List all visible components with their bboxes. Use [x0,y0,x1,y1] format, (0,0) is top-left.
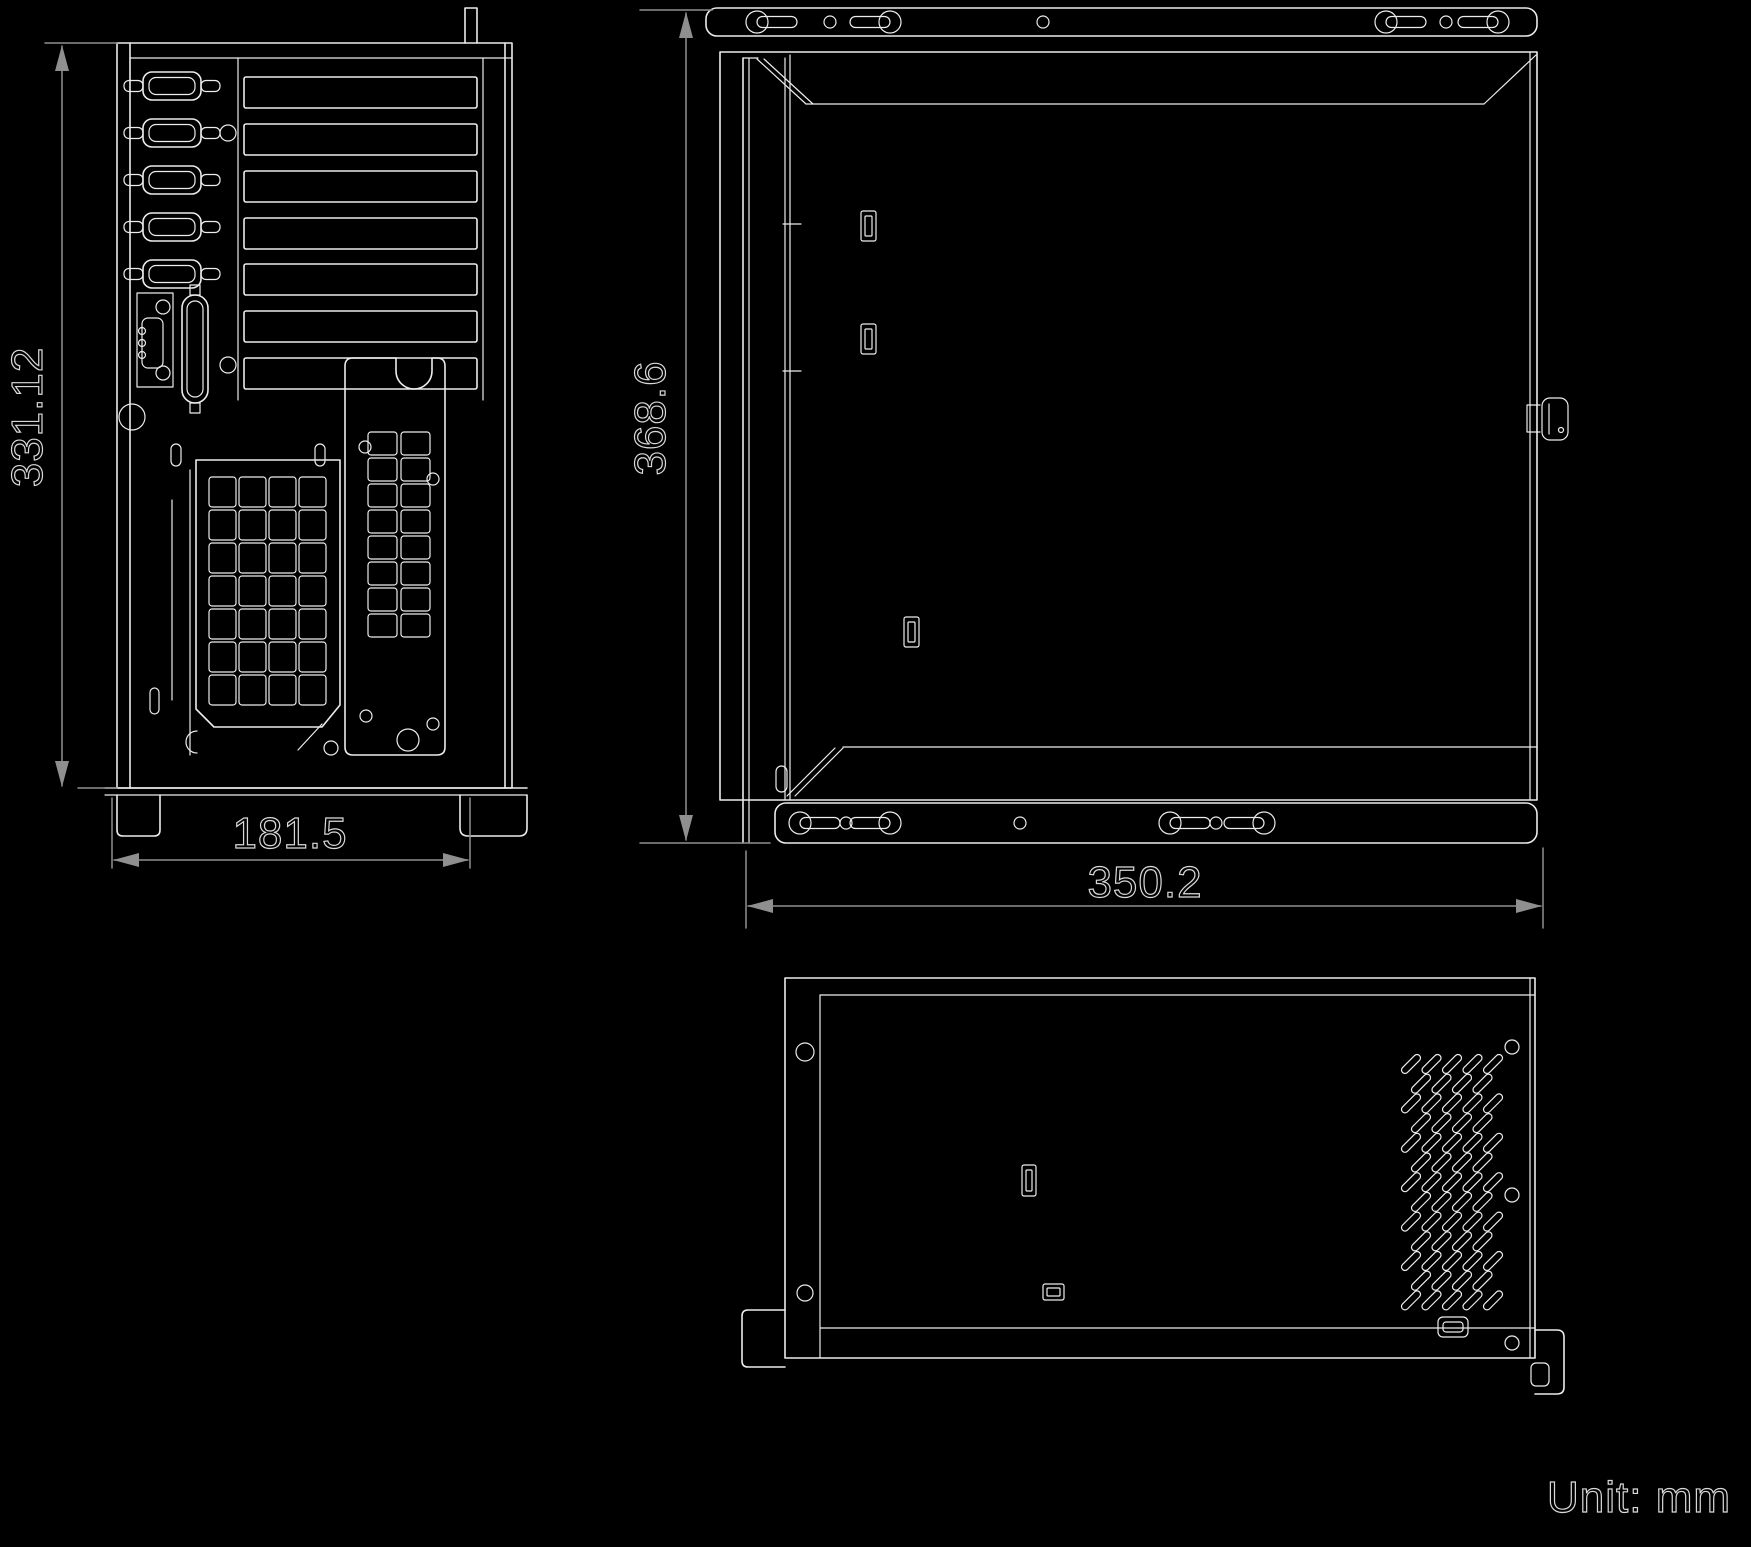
db9-ear-right [201,81,220,92]
keyhole-slot [850,818,890,829]
db25-tab-bottom [190,403,200,413]
vent-louver [1482,1171,1504,1193]
expansion-slot-cover [244,77,477,108]
keyhole-slot [800,818,840,829]
base-foot-left [117,795,160,836]
db9-serial-connector [124,166,220,194]
vent-louver [1482,1289,1504,1311]
vent-louver [1482,1211,1504,1233]
keyhole-slot [757,17,797,28]
keyhole-slot [1458,17,1498,28]
expansion-slot-cover [244,358,477,389]
vent-louver [1431,1230,1453,1252]
vent-louver [1441,1171,1463,1193]
db9-body [143,166,201,194]
fan-grid-cell [239,675,266,705]
side-view: 368.6 350.2 [626,8,1568,928]
vent-louver [1482,1132,1504,1154]
screw-hole [427,718,439,730]
db9-ear-left [124,175,143,186]
dimension-side-depth: 350.2 [746,848,1543,928]
fan-grid-cell [299,543,326,573]
keyhole-mount-slot [1458,11,1509,33]
db25-connector-outer [182,295,208,403]
fan-grid-cell [269,510,296,540]
drawing-canvas: 331.12 181.5 [0,0,1751,1547]
vent-louver [1400,1211,1422,1233]
dimension-rear-width: 181.5 [112,798,470,868]
fan-grid-cell [209,477,236,507]
side-depth-label: 350.2 [1087,858,1202,907]
vent-louver [1462,1053,1484,1075]
flange-hole [1210,817,1222,829]
flange-hole [1014,817,1026,829]
psu-grid-cell [368,432,397,455]
fan-plate-hook [315,444,325,466]
screw-hole [156,300,170,314]
keyhole-slot [1386,17,1426,28]
db9-inner [149,266,195,283]
vent-louver [1472,1270,1494,1292]
bracket-arc [186,731,197,753]
side-body-outline [720,52,1537,800]
vent-louver [1451,1112,1473,1134]
db9-inner [149,219,195,236]
dimension-rear-height: 331.12 [3,43,117,788]
keyhole-mount-slot [746,11,797,33]
vent-louver [1410,1073,1432,1095]
fan-grid-cell [269,477,296,507]
db9-body [143,213,201,241]
db9-inner [149,125,195,142]
vent-louver [1400,1171,1422,1193]
vent-louver [1431,1191,1453,1213]
fan-grid-cell [239,477,266,507]
vent-louver [1400,1132,1422,1154]
fan-grid-cell [269,675,296,705]
vent-louver [1431,1112,1453,1134]
db9-ear-right [201,128,220,139]
screw-hole [397,729,419,751]
vent-louver [1400,1289,1422,1311]
panel-chamfer-topleft [757,59,806,104]
db9-ear-left [124,269,143,280]
chassis-dimension-drawing: 331.12 181.5 [0,0,1751,1547]
screw-hole [1505,1188,1519,1202]
vent-louver [1472,1191,1494,1213]
screw-hole [427,473,439,485]
vent-louver [1451,1270,1473,1292]
rear-width-label: 181.5 [232,809,347,858]
flange-hole [1037,16,1049,28]
screw-hole [359,441,371,453]
vent-louver [1421,1289,1443,1311]
fan-grid-cell [299,642,326,672]
vent-louver [1410,1230,1432,1252]
vent-louver [1431,1152,1453,1174]
bracket-slot [150,688,159,714]
fan-guard-plate [196,460,340,727]
vent-louver [1431,1073,1453,1095]
screw-hole [796,1043,814,1061]
fan-grid-cell [269,609,296,639]
vent-louver [1472,1152,1494,1174]
psu-grid-cell [368,614,397,637]
vent-louver [1462,1171,1484,1193]
fan-grid-cell [239,642,266,672]
fan-grid-cell [299,510,326,540]
fan-grid-cell [269,576,296,606]
vent-louver [1462,1250,1484,1272]
vent-louver [1451,1230,1473,1252]
psu-grid-cell [368,484,397,507]
db9-ear-left [124,128,143,139]
vent-louver [1482,1053,1504,1075]
vent-louver [1410,1112,1432,1134]
rear-view: 331.12 181.5 [3,8,527,868]
vent-louver [1462,1289,1484,1311]
psu-grid-cell [401,484,430,507]
vent-louver [1472,1230,1494,1252]
bottom-cutout [1022,1165,1468,1337]
fan-grid-cell [269,642,296,672]
fan-grid-cell [269,543,296,573]
fan-grid-cell [239,543,266,573]
vent-louver [1441,1250,1463,1272]
vent-louver [1441,1289,1463,1311]
fan-grid-cell [299,576,326,606]
screw-hole [1505,1040,1519,1054]
psu-grid-cell [401,562,430,585]
keyhole-slot [850,17,890,28]
psu-grid-cell [401,458,430,481]
side-height-label: 368.6 [626,360,675,475]
flange-hole [824,16,836,28]
psu-grid-cell [368,562,397,585]
psu-grid-cell [368,536,397,559]
psu-grid-cell [368,458,397,481]
db9-ear-left [124,222,143,233]
unit-label: Unit: mm [1547,1473,1731,1522]
screw-hole [119,404,145,430]
vent-louver [1421,1132,1443,1154]
psu-grid-cell [401,614,430,637]
screw-hole [1505,1336,1519,1350]
vent-louver [1482,1250,1504,1272]
vent-louver [1421,1250,1443,1272]
vent-louver [1400,1053,1422,1075]
bottom-foot-right [1535,1330,1564,1394]
keyhole-mount-slot [850,812,901,834]
db9-ear-right [201,175,220,186]
vent-louver [1400,1092,1422,1114]
psu-grid-cell [401,432,430,455]
expansion-slot-cover [244,264,477,295]
psu-grid-cell [368,588,397,611]
panel-chamfer-bottomleft [787,748,835,796]
psu-grid-cell [401,536,430,559]
screw-hole [156,366,170,380]
vent-louver [1462,1132,1484,1154]
keyhole-slot [1170,818,1210,829]
vent-louver [1472,1112,1494,1134]
expansion-slot-cover [244,171,477,202]
vent-louver [1451,1073,1473,1095]
top-mount-flange [706,8,1537,36]
rear-top-bracket-tab [465,8,477,43]
psu-grid-cell [368,510,397,533]
keyhole-slot [1224,818,1264,829]
db9-serial-connector [124,213,220,241]
screw-hole [797,1285,813,1301]
vent-louver [1462,1211,1484,1233]
vent-louver [1421,1092,1443,1114]
fan-grid-cell [299,477,326,507]
vent-louver [1421,1171,1443,1193]
bottom-mount-flange [775,803,1537,843]
screw-hole [220,357,236,373]
db9-inner [149,172,195,189]
screw-hole [324,741,338,755]
db9-ear-right [201,269,220,280]
db9-serial-connector [124,119,220,147]
fan-grid-cell [209,543,236,573]
rear-height-label: 331.12 [3,347,52,488]
keyhole-mount-slot [1375,11,1426,33]
vent-louver [1441,1053,1463,1075]
db9-body [143,72,201,100]
side-latch-tab [1527,398,1568,440]
vent-louver [1441,1132,1463,1154]
vent-louver [1441,1092,1463,1114]
vent-louver [1410,1152,1432,1174]
db9-body [143,119,201,147]
fan-plate-hook [171,444,181,466]
panel-chamfer-topright [1484,55,1536,104]
keyhole-mount-slot [850,11,901,33]
fan-grid-cell [209,510,236,540]
keyhole-mount-slot [1159,812,1210,834]
fan-grid-cell [299,609,326,639]
vent-louver [1451,1191,1473,1213]
expansion-slot-cover [244,218,477,249]
expansion-slot-cover [244,124,477,155]
db9-serial-connector [124,72,220,100]
vent-louver [1462,1092,1484,1114]
bottom-view [742,978,1564,1394]
bottom-foot-tab [1531,1363,1549,1386]
bottom-outline [785,978,1535,1358]
db25-tab-top [190,285,200,295]
keyhole-mount-slot [1224,812,1275,834]
fan-grid-cell [239,510,266,540]
fan-grid-cell [299,675,326,705]
latch-diagonal [298,724,322,750]
db9-serial-connector [124,260,220,288]
screw-hole [220,125,236,141]
fan-grid-cell [209,576,236,606]
bottom-foot-left [742,1310,785,1367]
panel-chamfer-topleft [764,59,813,104]
panel-mount-slot [861,211,919,647]
fan-grid-cell [209,675,236,705]
fan-grid-cell [209,609,236,639]
fan-grid-cell [239,609,266,639]
vent-louver [1431,1270,1453,1292]
screw-hole [360,710,372,722]
vent-louver [1451,1152,1473,1174]
vent-louver [1400,1250,1422,1272]
db25-connector-inner [187,301,203,397]
vent-louver [1410,1191,1432,1213]
psu-grid-cell [401,510,430,533]
panel-chamfer-bottomleft [795,748,843,796]
fan-grid-cell [209,642,236,672]
vent-louver [1421,1211,1443,1233]
db9-body [143,260,201,288]
vent-louver [1482,1092,1504,1114]
vent-louver [1410,1270,1432,1292]
vent-louver [1441,1211,1463,1233]
psu-grid-cell [401,588,430,611]
fan-grid-cell [239,576,266,606]
expansion-slot-cover [244,311,477,342]
db9-ear-left [124,81,143,92]
vent-louver [1421,1053,1443,1075]
vent-louver [1472,1073,1494,1095]
db9-ear-right [201,222,220,233]
flange-hole [1440,16,1452,28]
keyhole-mount-slot [789,812,840,834]
db9-inner [149,78,195,95]
